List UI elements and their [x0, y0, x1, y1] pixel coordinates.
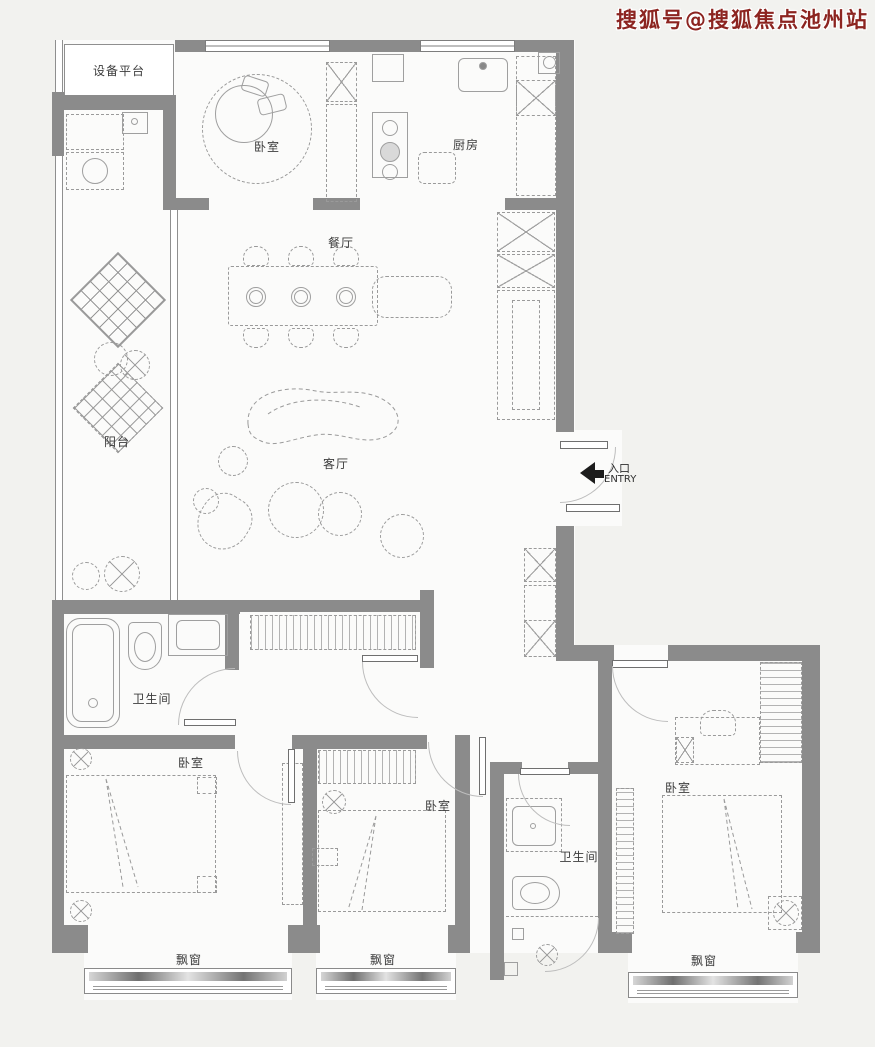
ceiling-lamp [70, 748, 92, 770]
wall-segment [52, 925, 88, 953]
label-balcony: 阳台 [82, 433, 152, 450]
wall-segment [240, 600, 430, 612]
shower-divider [506, 916, 598, 917]
label-bedroom-middle: 卧室 [403, 797, 473, 814]
watermark: 搜狐号@搜狐焦点池州站 [616, 4, 869, 34]
storage-cabinet-inner [512, 300, 540, 410]
bed-middle-fold [320, 812, 446, 912]
storage-cabinet [497, 212, 555, 252]
desk-chair [700, 710, 736, 736]
bay-window-glass [321, 972, 451, 981]
sofa-curved [232, 378, 417, 456]
entry-arrow-icon [580, 462, 595, 484]
shower-door-arc [545, 918, 599, 972]
label-equipment-platform: 设备平台 [84, 62, 154, 79]
floor-drain [504, 962, 518, 976]
bed-right-fold [664, 797, 782, 913]
wall-bath2-left [490, 762, 504, 980]
toilet-bowl [134, 632, 156, 662]
burner [382, 164, 398, 180]
plant [773, 900, 799, 926]
wall-segment [568, 762, 598, 774]
wall-segment [305, 735, 427, 749]
label-bay-window-right: 飘窗 [669, 952, 739, 969]
nightstand [197, 876, 217, 893]
ottoman [218, 446, 248, 476]
bathtub-drain [88, 698, 98, 708]
plate-inner [249, 290, 263, 304]
label-bay-window-left: 飘窗 [154, 951, 224, 968]
vanity-sink [176, 620, 220, 650]
entry-threshold [566, 504, 620, 512]
burner [382, 120, 398, 136]
balcony-table [120, 350, 150, 380]
entry-arrow-icon [595, 470, 604, 478]
wall-segment [448, 925, 470, 953]
wall-segment [55, 735, 235, 749]
bed-left-fold [68, 777, 188, 893]
wall-segment [505, 198, 557, 210]
label-bedroom-left: 卧室 [156, 754, 226, 771]
wall-segment [52, 600, 240, 614]
label-living-room: 客厅 [301, 455, 371, 472]
nightstand [197, 777, 217, 794]
desk-drawer [676, 737, 694, 763]
bay-window-glass [89, 972, 287, 981]
ceiling-lamp [70, 900, 92, 922]
wall-bedroom-right-left [598, 660, 612, 942]
wall-segment [288, 925, 320, 953]
corridor-closet [250, 615, 416, 650]
toilet2-bowl [520, 882, 550, 904]
storage-cabinet [524, 548, 556, 582]
coffee-table [268, 482, 324, 538]
plate-inner [294, 290, 308, 304]
burner [380, 142, 400, 162]
washer-box [66, 114, 124, 150]
bay-window-frame [325, 986, 447, 990]
bay-window-right [628, 972, 798, 998]
corridor-door-leaf [362, 655, 418, 662]
kitchen-cabinet [516, 80, 556, 116]
dryer-drum [82, 158, 108, 184]
window-bedroom-top [205, 40, 330, 52]
kitchen-faucet [479, 62, 487, 70]
storage-cabinet [524, 620, 556, 657]
label-bathroom-main: 卫生间 [112, 690, 192, 707]
label-dining-room: 餐厅 [306, 234, 376, 251]
balcony-inner-wall [170, 208, 178, 600]
wall-segment [175, 40, 205, 52]
storage-cabinet [497, 254, 555, 288]
shower-head [512, 928, 524, 940]
entry-label-en: ENTRY [604, 474, 636, 485]
wall-bedroom-left-right [303, 735, 317, 952]
coffee-table [318, 492, 362, 536]
label-bedroom-right: 卧室 [643, 779, 713, 796]
wardrobe-right-bedroom [760, 662, 802, 763]
plate-inner [339, 290, 353, 304]
window-kitchen [420, 40, 515, 52]
dining-sideboard [372, 276, 452, 318]
bay-window-left [84, 968, 292, 994]
wall-segment [556, 645, 614, 661]
plant [72, 562, 100, 590]
bay-window-middle [316, 968, 456, 994]
wall-segment [330, 40, 420, 52]
bay-window-frame [637, 990, 789, 994]
nightstand [312, 848, 338, 866]
wardrobe-mid-bedroom [318, 750, 416, 784]
plant [104, 556, 140, 592]
wall-left-outer [52, 600, 64, 953]
label-bathroom-second: 卫生间 [539, 848, 619, 865]
wardrobe-top-bedroom [326, 62, 357, 102]
wall-right-lower [556, 526, 574, 648]
label-bay-window-middle: 飘窗 [348, 951, 418, 968]
wall-segment [52, 95, 176, 110]
wall-segment [163, 198, 209, 210]
wall-segment [292, 735, 317, 749]
bay-window-glass [633, 976, 793, 985]
utility-faucet [131, 118, 138, 125]
dining-chair [243, 246, 269, 266]
floor-plan: 入口 ENTRY 设备平台 卧室 厨房 餐厅 阳台 客厅 卫生间 卧室 卧室 卫… [0, 0, 875, 1047]
wall-segment [668, 645, 820, 661]
wall-segment [598, 932, 632, 953]
kitchen-cart [418, 152, 456, 184]
ottoman [380, 514, 424, 558]
wall-segment [420, 590, 434, 668]
bay-window-frame [93, 986, 283, 990]
wardrobe-top-bedroom [326, 104, 357, 202]
wall-segment [796, 932, 820, 953]
wall-right-outer [802, 648, 820, 953]
vanity2-drain [530, 823, 536, 829]
fridge [372, 54, 404, 82]
label-kitchen: 厨房 [431, 136, 501, 153]
kitchen-counter [516, 56, 556, 196]
label-bedroom-top: 卧室 [232, 138, 302, 155]
wall-segment [163, 95, 176, 205]
wall-right-upper [556, 40, 574, 432]
